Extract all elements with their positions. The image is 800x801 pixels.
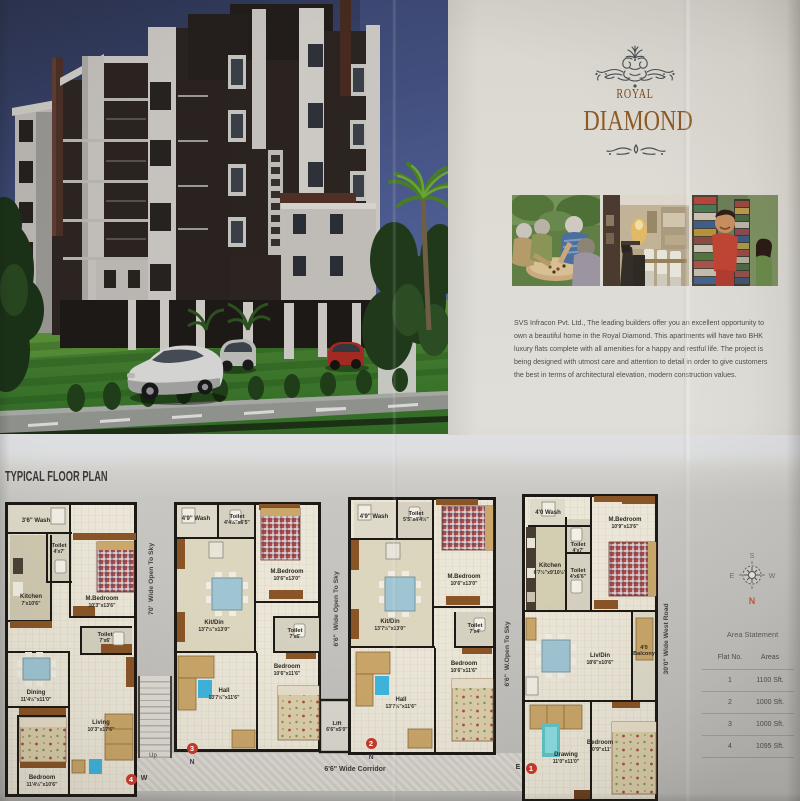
svg-text:Kitchen: Kitchen	[20, 594, 42, 600]
svg-text:Hall: Hall	[218, 688, 229, 694]
svg-text:4'x6'6": 4'x6'6"	[570, 574, 587, 580]
svg-text:Drawing: Drawing	[554, 752, 578, 758]
svg-text:10'3"x17'6": 10'3"x17'6"	[87, 727, 115, 733]
svg-text:10'3"x13'6": 10'3"x13'6"	[88, 603, 116, 609]
svg-text:4'9" Wash: 4'9" Wash	[360, 514, 389, 520]
svg-text:11'4½"x11'0": 11'4½"x11'0"	[21, 696, 52, 703]
svg-text:W: W	[769, 573, 776, 580]
svg-text:M.Bedroom: M.Bedroom	[86, 596, 119, 602]
svg-text:13'7½"x13'0": 13'7½"x13'0"	[374, 625, 406, 632]
svg-text:Hall: Hall	[395, 697, 406, 703]
svg-text:13'7½"x11'6": 13'7½"x11'6"	[208, 694, 240, 701]
svg-text:Kitchen: Kitchen	[539, 563, 561, 569]
svg-text:10'9"x13'6": 10'9"x13'6"	[611, 524, 639, 530]
svg-text:11'4½"x10'6": 11'4½"x10'6"	[26, 781, 58, 788]
svg-text:5'5"x4'4½": 5'5"x4'4½"	[403, 516, 429, 523]
svg-text:6'7½"x9'10½": 6'7½"x9'10½"	[534, 569, 567, 576]
svg-text:M.Bedroom: M.Bedroom	[271, 569, 304, 575]
svg-text:4'x7': 4'x7'	[54, 549, 65, 555]
svg-text:Living: Living	[92, 720, 110, 726]
svg-text:Balcony: Balcony	[633, 651, 656, 657]
svg-text:4'9" Wash: 4'9" Wash	[182, 516, 211, 522]
svg-text:18'6"x10'6": 18'6"x10'6"	[586, 660, 614, 666]
svg-text:11'0"x11'0": 11'0"x11'0"	[553, 759, 580, 765]
svg-text:7'x10'6": 7'x10'6"	[21, 601, 41, 607]
svg-text:10'6"x11'6": 10'6"x11'6"	[274, 671, 301, 677]
svg-text:3'6" Wash: 3'6" Wash	[22, 518, 51, 524]
svg-text:4'x7': 4'x7'	[573, 548, 584, 554]
svg-text:Kit/Din: Kit/Din	[380, 619, 400, 625]
svg-text:10'9"x11': 10'9"x11'	[589, 747, 611, 753]
svg-text:M.Bedroom: M.Bedroom	[448, 574, 481, 580]
svg-text:Liv/Din: Liv/Din	[590, 653, 610, 659]
svg-text:S: S	[750, 553, 755, 560]
svg-text:10'6"x13'0": 10'6"x13'0"	[450, 581, 478, 587]
svg-text:7'x6': 7'x6'	[290, 634, 301, 640]
svg-text:13'7½"x11'6": 13'7½"x11'6"	[385, 703, 417, 710]
svg-text:10'6"x13'0": 10'6"x13'0"	[273, 576, 301, 582]
svg-text:Dining: Dining	[27, 690, 46, 696]
svg-text:N: N	[749, 596, 756, 606]
svg-text:Bedroom: Bedroom	[451, 661, 477, 667]
svg-text:Kit/Din: Kit/Din	[204, 620, 224, 626]
svg-text:4'0 Wash: 4'0 Wash	[535, 510, 561, 516]
svg-text:M.Bedroom: M.Bedroom	[609, 517, 642, 523]
svg-text:Bedroom: Bedroom	[587, 740, 613, 746]
svg-text:13'7½"x13'0": 13'7½"x13'0"	[198, 626, 230, 633]
svg-text:Bedroom: Bedroom	[29, 775, 55, 781]
svg-text:6'6"x5'0": 6'6"x5'0"	[326, 727, 348, 733]
svg-text:7'x4': 7'x4'	[470, 629, 481, 635]
svg-text:4'4½"x6'5": 4'4½"x6'5"	[224, 519, 250, 526]
svg-text:7'x6': 7'x6'	[100, 638, 111, 644]
svg-text:E: E	[730, 573, 735, 580]
svg-text:10'6"x11'6": 10'6"x11'6"	[451, 668, 478, 674]
svg-text:Bedroom: Bedroom	[274, 664, 300, 670]
